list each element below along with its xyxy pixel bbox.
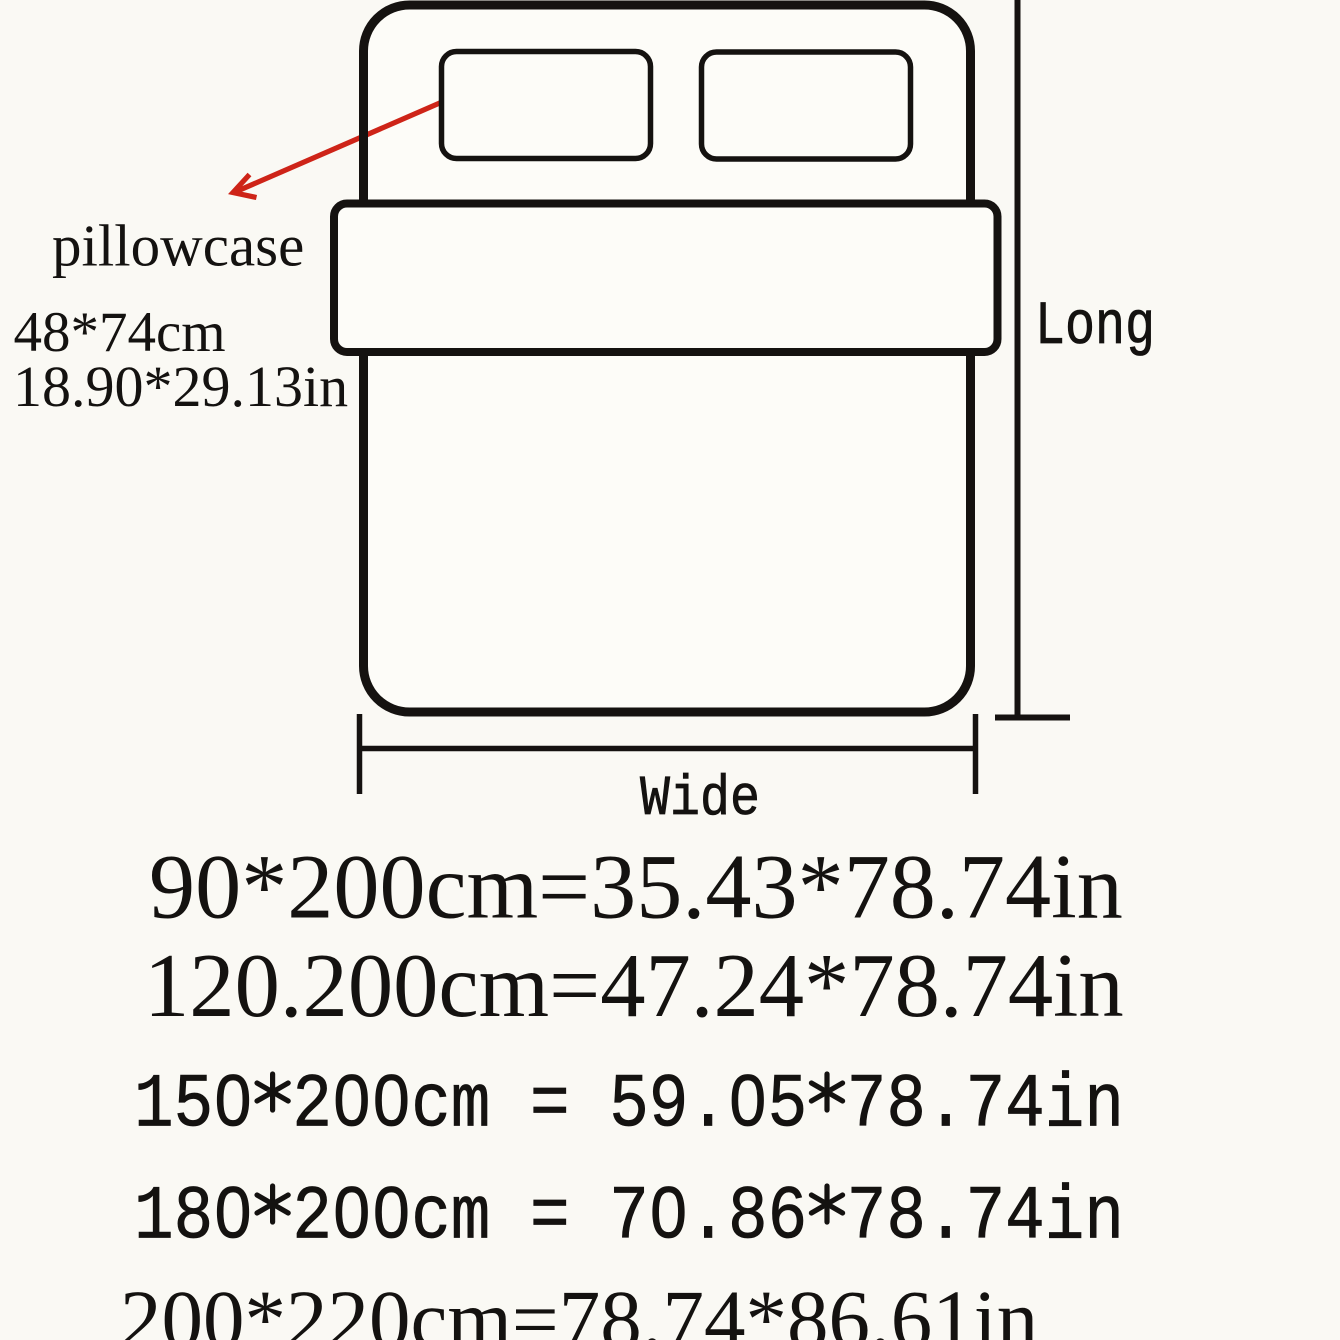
svg-text:120.200cm=47.24*78.74in: 120.200cm=47.24*78.74in [144, 935, 1124, 1036]
svg-text:Long: Long [1035, 293, 1155, 362]
svg-text:pillowcase: pillowcase [52, 213, 304, 279]
svg-text:200*220cm=78.74*86.61in: 200*220cm=78.74*86.61in [120, 1273, 1038, 1340]
svg-text:90*200cm=35.43*78.74in: 90*200cm=35.43*78.74in [149, 836, 1123, 938]
svg-text:18.90*29.13in: 18.90*29.13in [13, 354, 348, 419]
svg-text:Wide: Wide [640, 768, 760, 832]
